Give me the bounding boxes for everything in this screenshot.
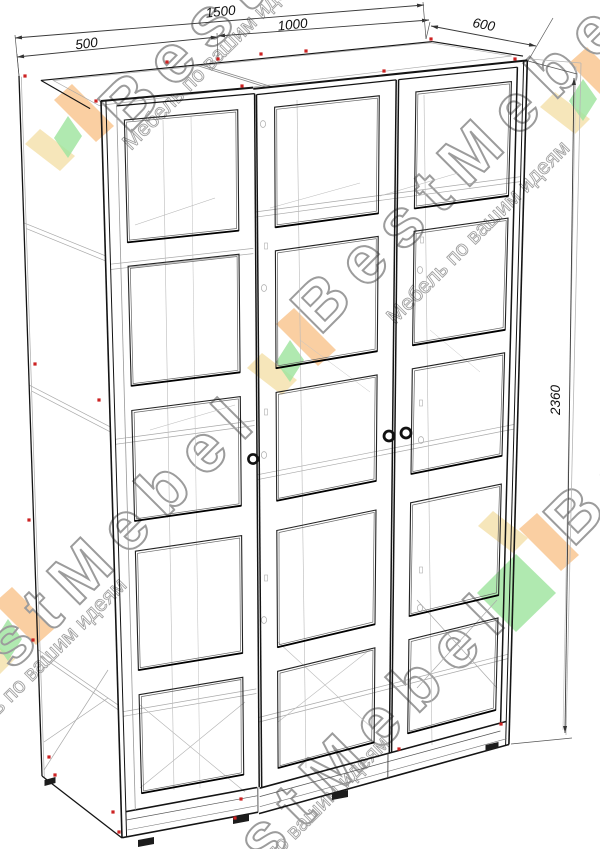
svg-text:500: 500 bbox=[74, 35, 99, 53]
svg-text:1500: 1500 bbox=[205, 2, 237, 20]
svg-text:2360: 2360 bbox=[548, 384, 563, 416]
svg-text:1000: 1000 bbox=[277, 15, 309, 33]
